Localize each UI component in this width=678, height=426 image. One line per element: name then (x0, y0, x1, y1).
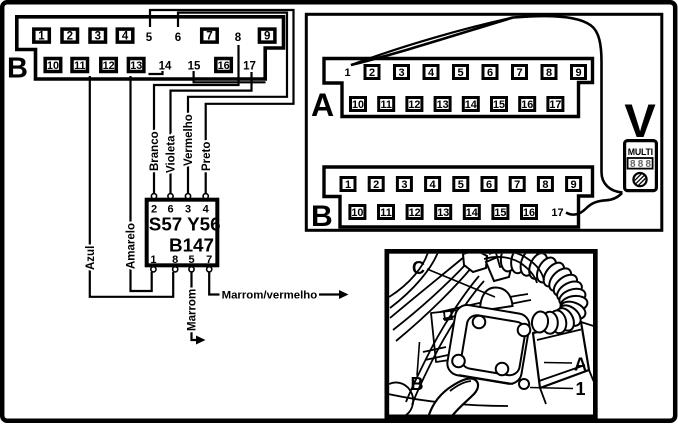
svg-text:B: B (411, 374, 424, 394)
svg-text:14: 14 (465, 99, 477, 111)
svg-text:1: 1 (344, 67, 350, 79)
svg-text:12: 12 (409, 207, 421, 219)
svg-text:3: 3 (398, 67, 404, 79)
svg-text:17: 17 (549, 99, 561, 111)
svg-text:3: 3 (95, 31, 101, 43)
svg-text:6: 6 (487, 67, 493, 79)
svg-text:8: 8 (542, 179, 548, 191)
svg-text:1: 1 (38, 31, 45, 43)
svg-text:10: 10 (351, 207, 363, 219)
svg-text:Violeta: Violeta (166, 135, 178, 173)
svg-text:B: B (311, 200, 333, 233)
svg-text:10: 10 (352, 99, 364, 111)
svg-text:11: 11 (380, 99, 391, 111)
svg-text:888: 888 (630, 159, 653, 170)
svg-text:8: 8 (235, 32, 242, 44)
svg-text:Amarelo: Amarelo (126, 223, 138, 269)
svg-text:Preto: Preto (201, 142, 213, 171)
svg-text:1: 1 (576, 379, 586, 399)
svg-text:14: 14 (466, 207, 478, 219)
svg-text:5: 5 (457, 67, 463, 79)
svg-text:12: 12 (408, 99, 420, 111)
svg-text:Branco: Branco (149, 131, 161, 171)
svg-text:13: 13 (437, 99, 449, 111)
svg-text:3: 3 (401, 179, 407, 191)
svg-text:11: 11 (380, 207, 391, 219)
svg-text:9: 9 (575, 67, 581, 79)
svg-text:5: 5 (146, 32, 153, 44)
svg-text:Marrom/vermelho: Marrom/vermelho (222, 290, 318, 302)
svg-text:12: 12 (103, 60, 115, 72)
svg-text:B147: B147 (169, 235, 214, 256)
svg-text:15: 15 (494, 207, 506, 219)
svg-text:7: 7 (516, 67, 522, 79)
svg-text:17: 17 (243, 60, 256, 72)
svg-text:7: 7 (206, 31, 212, 43)
svg-text:1: 1 (345, 179, 351, 191)
svg-text:7: 7 (514, 179, 520, 191)
svg-text:14: 14 (159, 60, 172, 72)
svg-text:11: 11 (74, 60, 85, 72)
svg-text:C: C (412, 258, 425, 278)
svg-text:Vermelho: Vermelho (183, 114, 195, 166)
svg-text:2: 2 (67, 31, 73, 43)
svg-text:9: 9 (571, 179, 577, 191)
svg-text:17: 17 (551, 207, 563, 219)
svg-text:B: B (7, 53, 28, 85)
svg-text:15: 15 (493, 99, 505, 111)
svg-text:4: 4 (428, 67, 435, 79)
svg-text:Marrom: Marrom (187, 289, 199, 331)
svg-text:16: 16 (521, 99, 533, 111)
svg-text:13: 13 (130, 60, 142, 72)
svg-text:16: 16 (523, 207, 535, 219)
svg-text:A: A (311, 87, 334, 123)
svg-text:9: 9 (264, 31, 270, 43)
svg-text:A: A (574, 355, 587, 375)
svg-text:4: 4 (430, 179, 437, 191)
svg-text:4: 4 (122, 31, 129, 43)
svg-text:5: 5 (458, 179, 464, 191)
svg-text:8: 8 (546, 67, 552, 79)
svg-text:2: 2 (373, 179, 379, 191)
svg-text:MULTI: MULTI (628, 147, 653, 157)
svg-text:6: 6 (486, 179, 492, 191)
svg-text:2: 2 (369, 67, 375, 79)
svg-text:6: 6 (175, 32, 181, 44)
svg-text:10: 10 (47, 60, 59, 72)
svg-text:13: 13 (437, 207, 449, 219)
svg-text:15: 15 (188, 60, 201, 72)
svg-text:Azul: Azul (85, 246, 97, 270)
svg-text:16: 16 (218, 60, 230, 72)
svg-text:S57 Y56: S57 Y56 (149, 214, 221, 235)
